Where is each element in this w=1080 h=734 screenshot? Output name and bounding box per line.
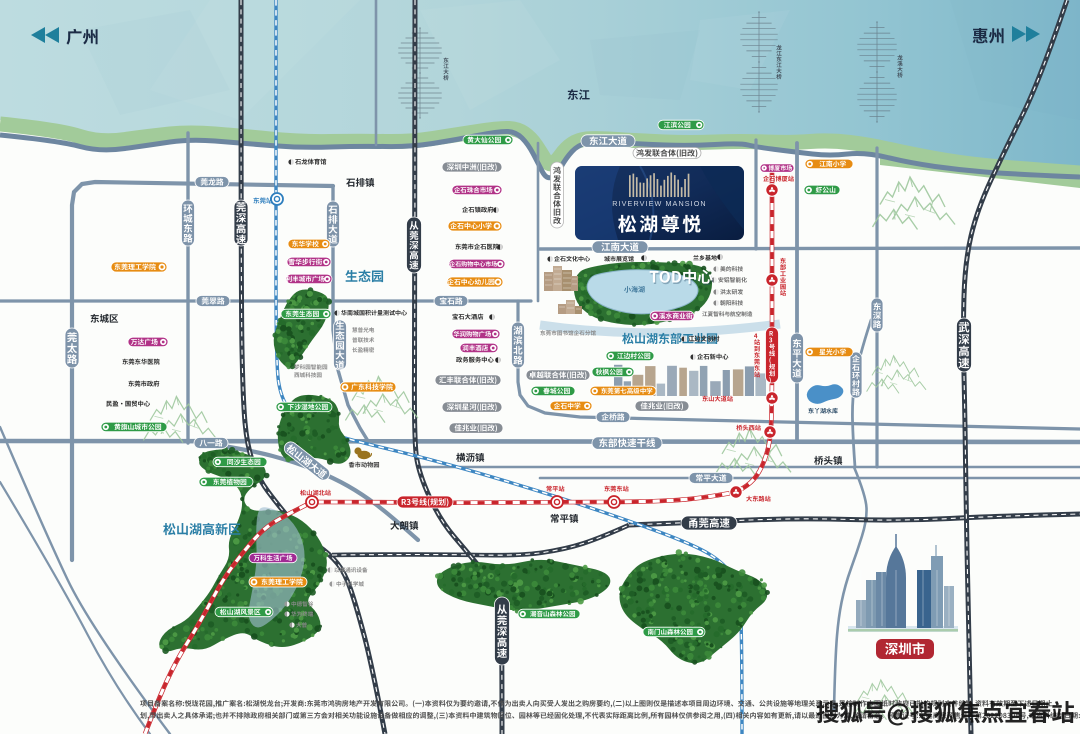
svg-text:RIVERVIEW MANSION: RIVERVIEW MANSION — [612, 199, 706, 208]
